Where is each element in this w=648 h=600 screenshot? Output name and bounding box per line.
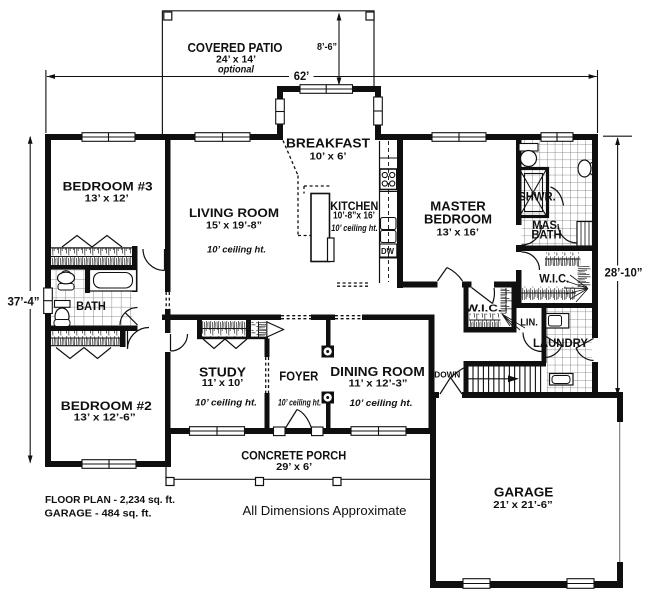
svg-text:10’ ceiling ht.: 10’ ceiling ht. — [278, 398, 321, 408]
svg-text:62’: 62’ — [294, 71, 310, 83]
svg-text:10’-8”x 16’: 10’-8”x 16’ — [333, 210, 375, 221]
svg-text:10’ ceiling ht.: 10’ ceiling ht. — [195, 398, 257, 409]
svg-text:13’ x 12’-6”: 13’ x 12’-6” — [74, 412, 136, 424]
svg-text:FOYER: FOYER — [279, 370, 318, 384]
svg-text:BEDROOM: BEDROOM — [424, 213, 492, 227]
svg-text:DOWN: DOWN — [434, 370, 460, 380]
svg-text:LIVING ROOM: LIVING ROOM — [189, 206, 279, 220]
svg-text:13’ x 12’: 13’ x 12’ — [85, 192, 129, 204]
svg-text:LAUNDRY: LAUNDRY — [533, 338, 588, 350]
svg-text:LIN.: LIN. — [520, 318, 538, 329]
svg-text:SHWR.: SHWR. — [518, 191, 556, 203]
svg-text:10’ ceiling ht.: 10’ ceiling ht. — [207, 244, 266, 255]
svg-text:21’ x 21’-6”: 21’ x 21’-6” — [493, 499, 553, 511]
svg-text:29’ x 6’: 29’ x 6’ — [276, 461, 312, 473]
svg-text:37’-4”: 37’-4” — [8, 296, 40, 308]
svg-text:15’ x 19’-8”: 15’ x 19’-8” — [206, 220, 262, 232]
svg-text:MASTER: MASTER — [430, 199, 486, 213]
svg-text:optional: optional — [218, 65, 254, 76]
svg-text:BATH: BATH — [532, 230, 562, 242]
svg-text:10’ ceiling ht.: 10’ ceiling ht. — [331, 223, 378, 233]
svg-text:GARAGE - 484 sq. ft.: GARAGE - 484 sq. ft. — [45, 508, 152, 519]
svg-text:FLOOR PLAN - 2,234 sq. ft.: FLOOR PLAN - 2,234 sq. ft. — [45, 495, 175, 506]
svg-text:GARAGE: GARAGE — [494, 486, 554, 500]
svg-text:28’-10”: 28’-10” — [605, 268, 643, 280]
svg-text:BREAKFAST: BREAKFAST — [286, 136, 370, 151]
svg-text:BATH: BATH — [76, 299, 106, 313]
svg-text:W.I.C.: W.I.C. — [466, 303, 502, 315]
svg-text:10’ x 6’: 10’ x 6’ — [310, 151, 347, 163]
svg-text:11’ x 10’: 11’ x 10’ — [202, 377, 244, 389]
svg-text:All Dimensions Approximate: All Dimensions Approximate — [243, 503, 407, 518]
svg-text:11’ x 12’-3”: 11’ x 12’-3” — [349, 378, 408, 390]
svg-text:8’-6”: 8’-6” — [317, 42, 337, 53]
svg-text:10’ ceiling ht.: 10’ ceiling ht. — [350, 398, 413, 409]
svg-text:W.I.C.: W.I.C. — [539, 272, 569, 286]
svg-text:DW: DW — [381, 246, 395, 256]
svg-text:13’ x 16’: 13’ x 16’ — [437, 226, 479, 238]
